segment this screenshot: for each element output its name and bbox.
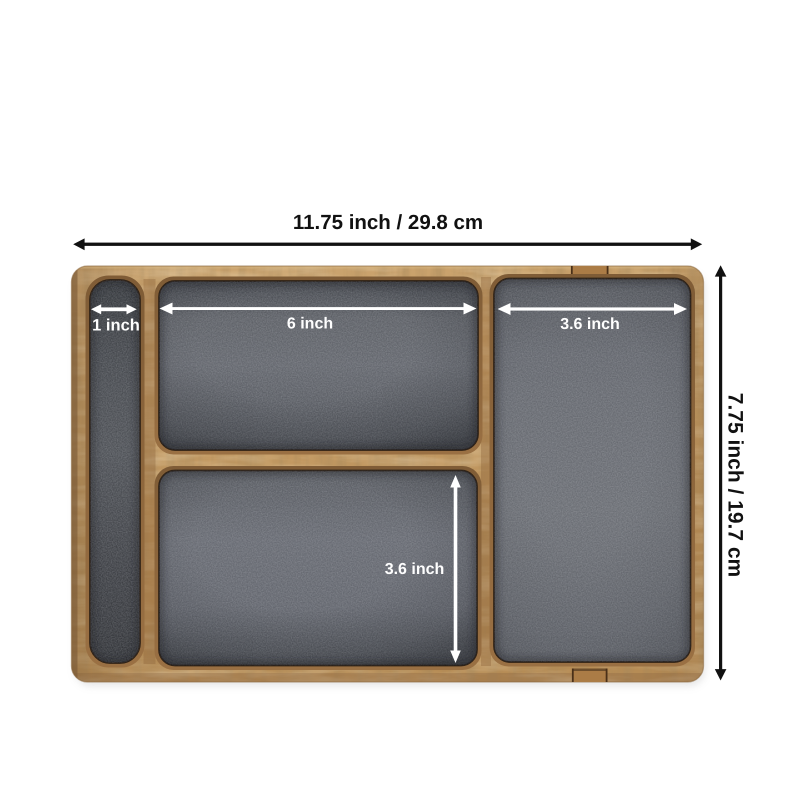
svg-text:3.6 inch: 3.6 inch — [560, 316, 620, 333]
svg-text:11.75 inch / 29.8 cm: 11.75 inch / 29.8 cm — [293, 211, 483, 234]
svg-text:7.75 inch / 19.7 cm: 7.75 inch / 19.7 cm — [724, 393, 747, 577]
svg-text:6 inch: 6 inch — [287, 316, 333, 333]
svg-text:3.6 inch: 3.6 inch — [385, 561, 445, 578]
svg-text:1 inch: 1 inch — [92, 317, 140, 335]
